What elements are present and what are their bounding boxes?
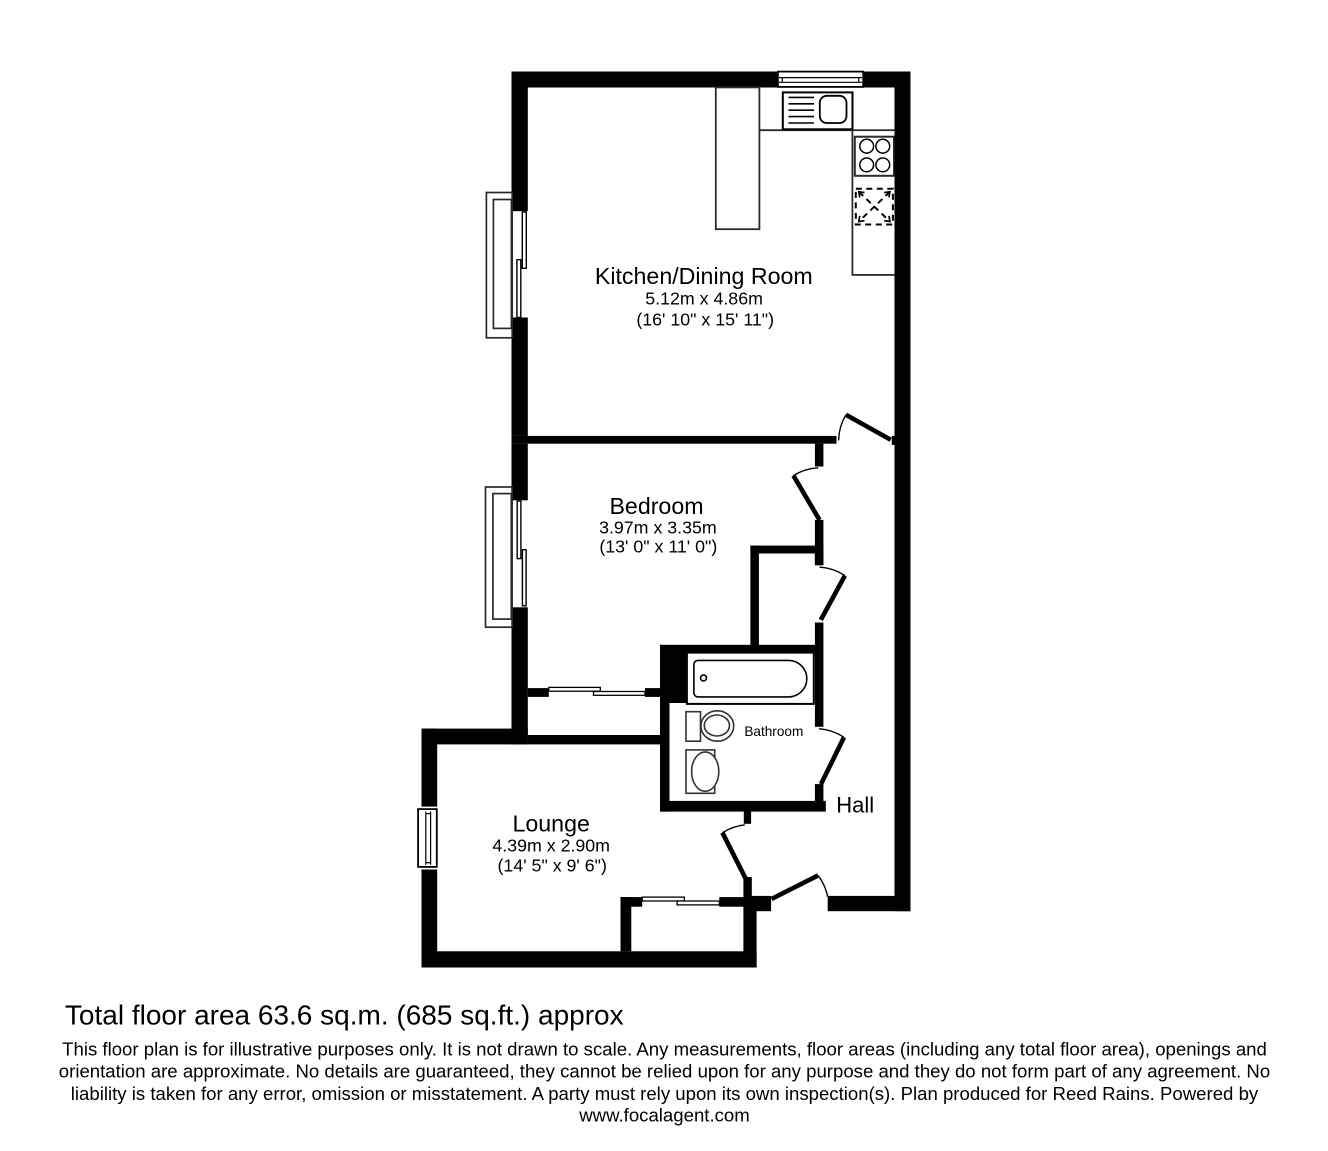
- svg-text:Lounge: Lounge: [513, 811, 590, 837]
- svg-text:Bathroom: Bathroom: [744, 724, 803, 739]
- svg-text:(14' 5" x 9' 6"): (14' 5" x 9' 6"): [498, 855, 607, 875]
- svg-text:www.focalagent.com: www.focalagent.com: [578, 1105, 750, 1126]
- svg-text:liability is taken for any err: liability is taken for any error, omissi…: [71, 1083, 1259, 1104]
- svg-text:4.39m x 2.90m: 4.39m x 2.90m: [492, 836, 610, 856]
- svg-text:orientation are approximate. N: orientation are approximate. No details …: [59, 1061, 1270, 1082]
- svg-text:(13' 0" x 11' 0"): (13' 0" x 11' 0"): [599, 537, 717, 557]
- svg-text:This floor plan is for illustr: This floor plan is for illustrative purp…: [62, 1038, 1267, 1059]
- svg-text:Kitchen/Dining Room: Kitchen/Dining Room: [595, 263, 813, 289]
- svg-text:Total floor area 63.6 sq.m. (6: Total floor area 63.6 sq.m. (685 sq.ft.)…: [65, 999, 624, 1030]
- svg-text:5.12m x 4.86m: 5.12m x 4.86m: [645, 289, 763, 309]
- svg-text:Bedroom: Bedroom: [609, 493, 703, 519]
- svg-text:Hall: Hall: [836, 792, 874, 817]
- svg-text:3.97m x 3.35m: 3.97m x 3.35m: [599, 518, 717, 538]
- svg-text:(16' 10" x 15' 11"): (16' 10" x 15' 11"): [636, 309, 774, 329]
